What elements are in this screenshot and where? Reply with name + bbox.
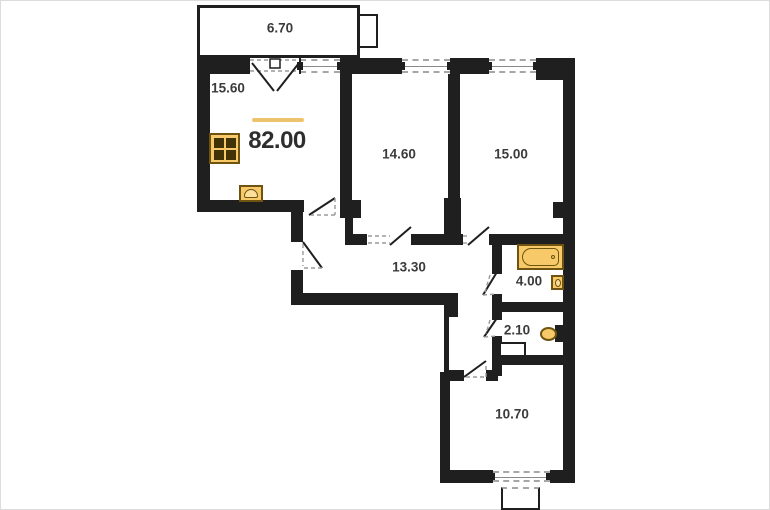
room2-door-swing <box>463 227 489 245</box>
bathtub-icon <box>517 244 564 270</box>
room-label-hallway: 13.30 <box>392 260 426 275</box>
room1-door-swing <box>368 227 411 245</box>
room-label-kitchen-living: 15.60 <box>211 81 245 96</box>
room-label-bathroom: 4.00 <box>516 274 542 289</box>
room-label-wc: 2.10 <box>504 323 530 338</box>
stove-icon <box>209 133 240 164</box>
floor-plan: 82.00 6.70 15.60 14.60 15.00 13.30 4.00 … <box>0 0 770 510</box>
bathroom-door-swing <box>483 272 497 295</box>
room-label-room-1: 14.60 <box>382 147 416 162</box>
french-door-swing <box>250 58 300 91</box>
wc-door-swing <box>484 318 497 337</box>
room3-door-swing <box>464 361 486 377</box>
duct-shaft <box>499 342 526 357</box>
entrance-door-swing <box>303 242 322 268</box>
door-swing-layer <box>0 0 770 510</box>
room-label-room-3: 10.70 <box>495 407 529 422</box>
total-area-label: 82.00 <box>248 127 306 155</box>
wash-basin-icon <box>551 275 564 290</box>
room-label-room-2: 15.00 <box>494 147 528 162</box>
kitchen-door-swing <box>309 198 335 215</box>
kitchen-sink-icon <box>239 185 263 202</box>
room-label-balcony: 6.70 <box>267 21 293 36</box>
total-area-accent-line <box>252 118 304 122</box>
